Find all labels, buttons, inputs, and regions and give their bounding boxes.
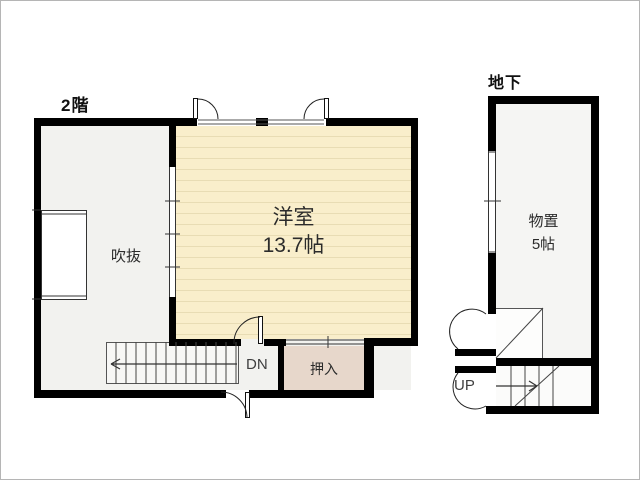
stair-landing: [496, 308, 543, 358]
stairs-up-label: UP: [454, 377, 475, 394]
wall-bottom-right: [249, 390, 374, 398]
b1-wall-top: [488, 96, 599, 104]
room-door-leaf: [258, 316, 263, 344]
storage-size: 5帖: [496, 233, 591, 254]
balcony-door-left-leaf: [193, 98, 198, 119]
void-label: 吹抜: [81, 245, 171, 266]
door-swing-arc-left: [198, 99, 218, 119]
floorplan-canvas: 2階 洋室 13.7帖 吹抜 押入 DN 地下 物置 5帖 UP: [0, 0, 640, 480]
basement-label: 地下: [488, 69, 522, 93]
stairs-down-label: DN: [246, 356, 268, 373]
door-swing-arc-right: [304, 99, 324, 119]
balcony-door-right-leaf: [324, 98, 329, 119]
entry-door-leaf: [245, 392, 250, 418]
b1-window: [488, 151, 496, 253]
b1-wall-right: [591, 96, 599, 414]
b1-entry-stub-lower: [455, 366, 496, 373]
western-room-size: 13.7帖: [176, 229, 411, 259]
staircase-b1: [496, 366, 591, 406]
wall-left: [34, 118, 41, 398]
balcony-door-mullion: [256, 118, 268, 126]
wall-room-bottom-right: [364, 338, 418, 346]
b1-wall-bottom: [486, 406, 599, 414]
wall-bottom-left: [34, 390, 226, 398]
b1-entry-stub-upper: [455, 349, 496, 356]
western-room-name: 洋室: [176, 201, 411, 231]
wall-right: [411, 118, 418, 346]
wall-divider-top: [169, 118, 176, 167]
storage-name: 物置: [496, 210, 591, 231]
wall-top-right: [326, 118, 418, 126]
staircase-2f: [106, 342, 239, 384]
b1-wall-left-mid: [488, 253, 496, 314]
wall-room-bottom-left: [169, 339, 241, 346]
void-window: [169, 167, 176, 297]
b1-door-swing-arc-upper: [450, 309, 486, 349]
closet-label: 押入: [284, 359, 364, 379]
second-floor-label: 2階: [61, 91, 89, 116]
b1-wall-left-upper: [488, 96, 496, 151]
b1-wall-mid: [496, 358, 591, 366]
